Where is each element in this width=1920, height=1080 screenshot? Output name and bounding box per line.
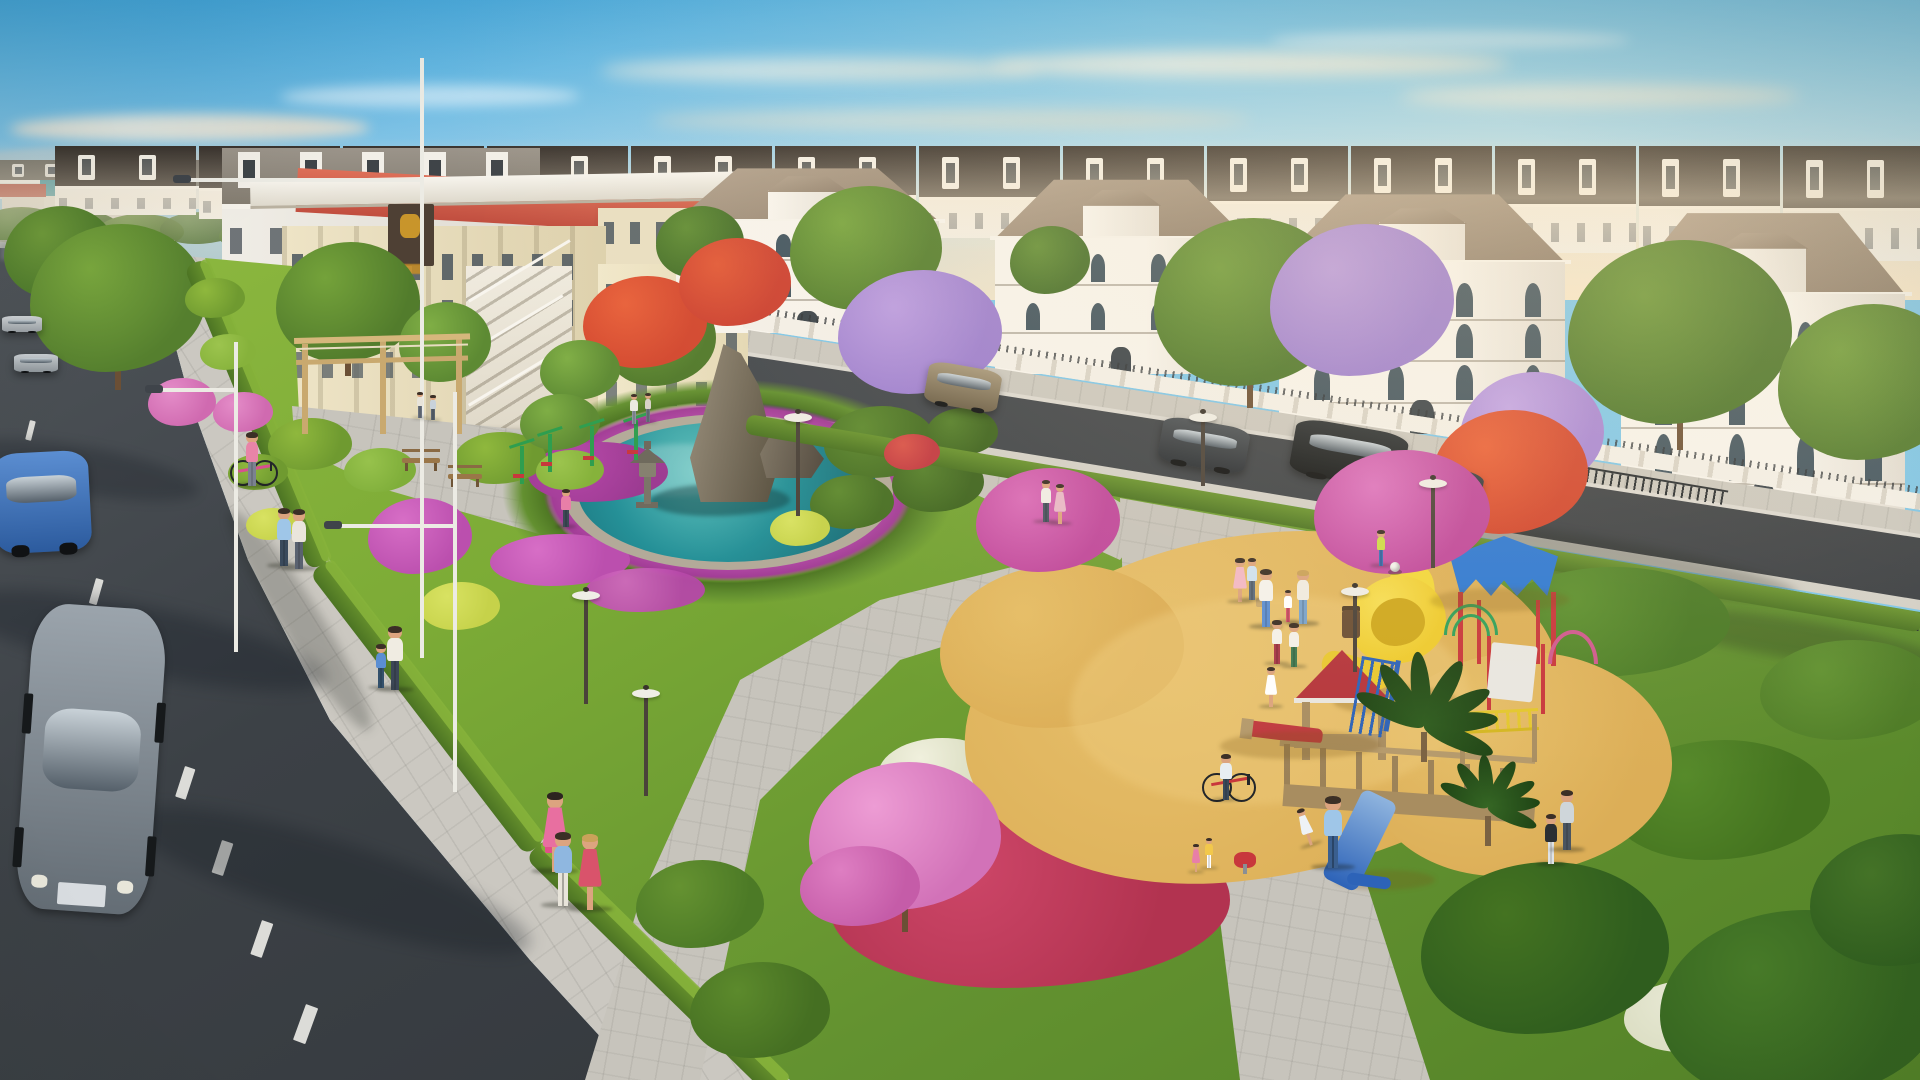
ambient-vignette [0,0,1920,1080]
scene-residential-park-rendering [0,0,1920,1080]
